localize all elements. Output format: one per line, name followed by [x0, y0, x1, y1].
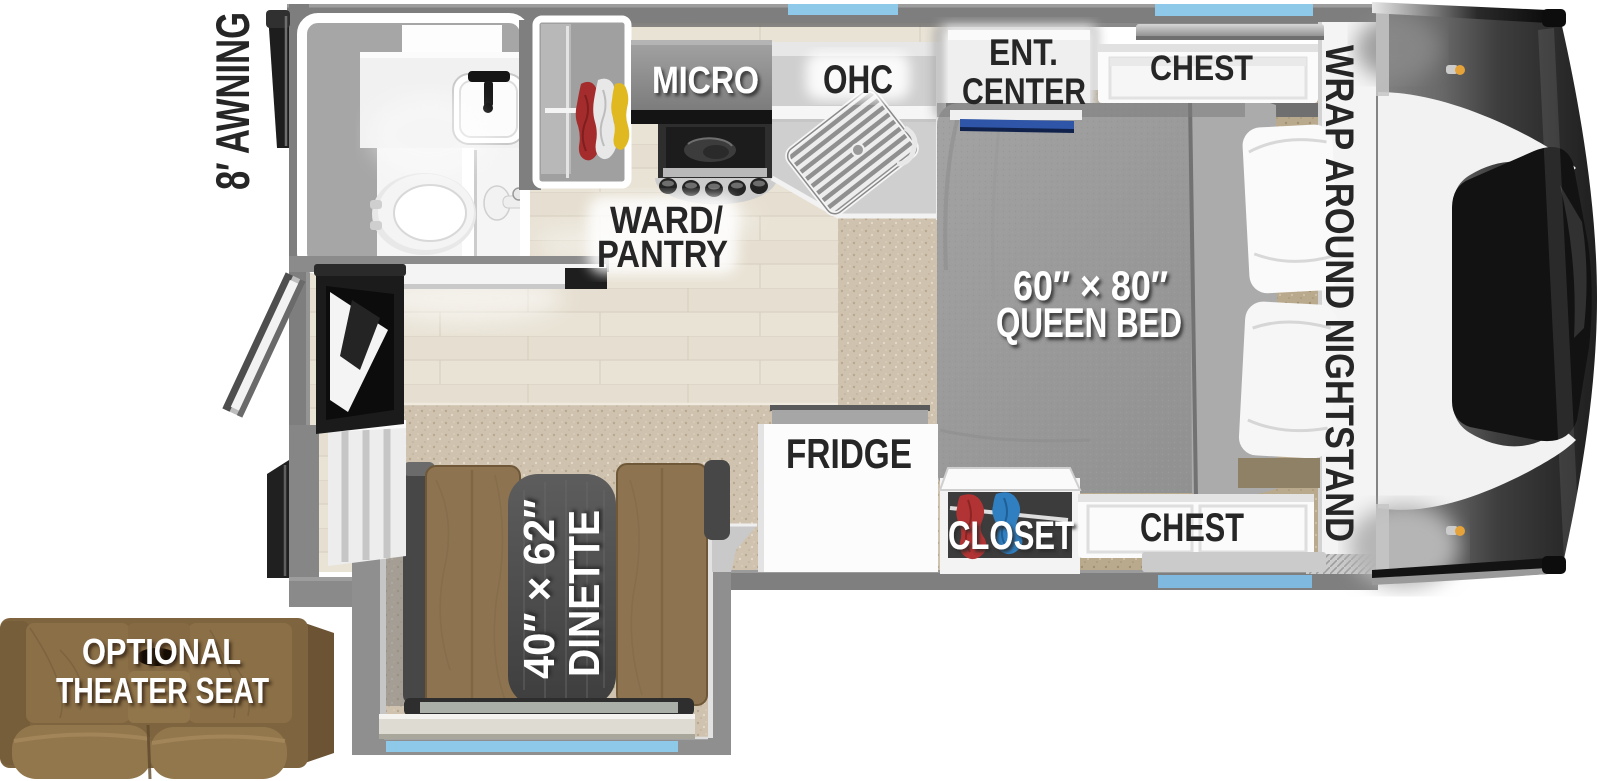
svg-text:OHC: OHC	[823, 58, 893, 102]
svg-text:QUEEN BED: QUEEN BED	[996, 299, 1182, 346]
svg-text:40″ × 62″: 40″ × 62″	[515, 499, 564, 679]
svg-text:THEATER SEAT: THEATER SEAT	[56, 670, 269, 711]
svg-text:DINETTE: DINETTE	[560, 510, 609, 677]
svg-text:CHEST: CHEST	[1140, 506, 1244, 550]
svg-text:ENT.: ENT.	[989, 32, 1058, 73]
svg-text:FRIDGE: FRIDGE	[786, 430, 912, 477]
svg-text:PANTRY: PANTRY	[597, 234, 728, 276]
svg-text:CLOSET: CLOSET	[948, 514, 1074, 558]
svg-text:8′ AWNING: 8′ AWNING	[206, 12, 259, 190]
svg-text:MICRO: MICRO	[652, 60, 759, 102]
svg-text:WRAP AROUND NIGHTSTAND: WRAP AROUND NIGHTSTAND	[1317, 45, 1361, 542]
svg-text:OPTIONAL: OPTIONAL	[82, 631, 241, 672]
svg-text:CENTER: CENTER	[962, 71, 1086, 112]
svg-text:CHEST: CHEST	[1150, 49, 1253, 88]
